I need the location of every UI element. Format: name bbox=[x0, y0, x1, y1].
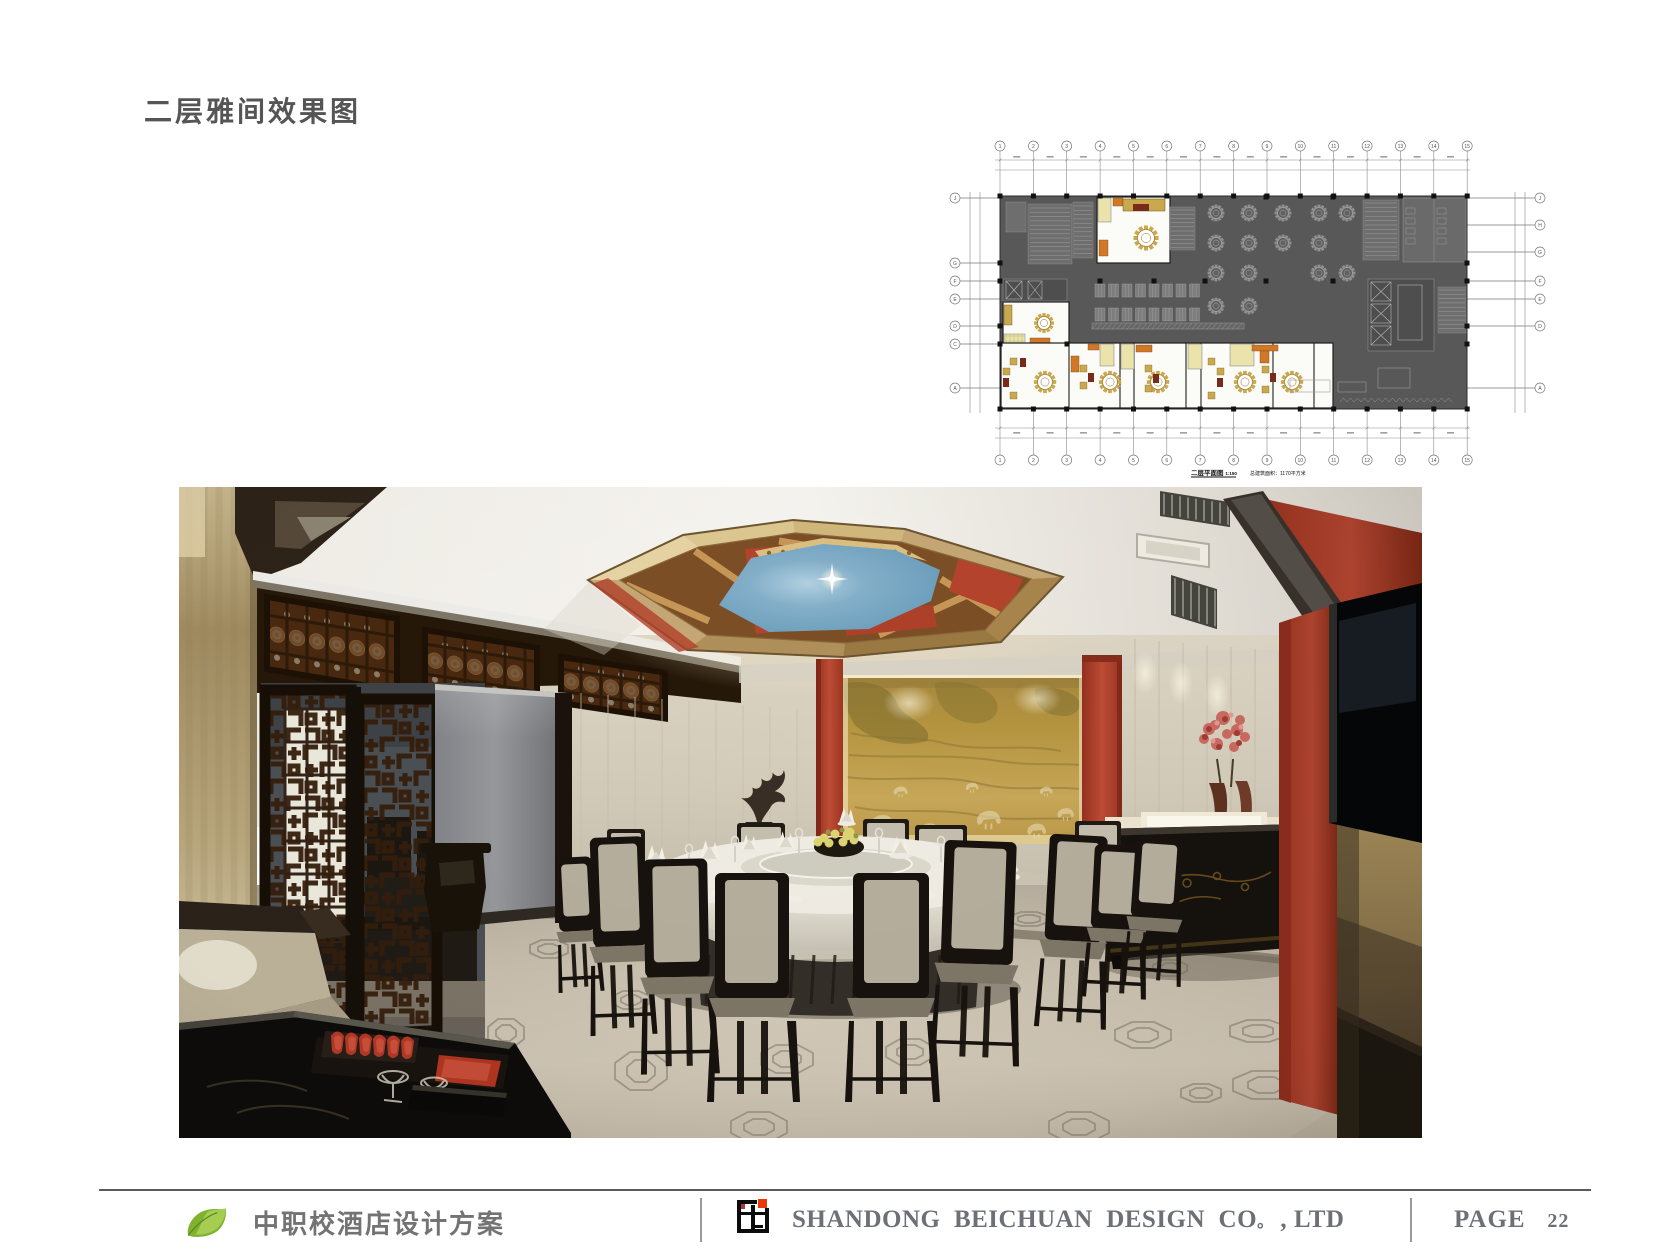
svg-text:3: 3 bbox=[1065, 144, 1068, 150]
svg-text:11: 11 bbox=[1331, 458, 1336, 464]
svg-text:1: 1 bbox=[999, 144, 1002, 150]
svg-text:9: 9 bbox=[1266, 144, 1269, 150]
svg-text:总建筑面积：1170平方米: 总建筑面积：1170平方米 bbox=[1250, 470, 1306, 477]
svg-text:7: 7 bbox=[1199, 458, 1202, 464]
svg-text:14: 14 bbox=[1431, 458, 1437, 464]
svg-text:12: 12 bbox=[1364, 144, 1370, 150]
svg-text:14: 14 bbox=[1431, 144, 1437, 150]
svg-text:7: 7 bbox=[1199, 144, 1202, 150]
svg-text:A: A bbox=[953, 386, 957, 392]
svg-text:J: J bbox=[1539, 196, 1542, 202]
svg-text:13: 13 bbox=[1398, 458, 1404, 464]
svg-text:D: D bbox=[953, 324, 957, 330]
svg-text:8: 8 bbox=[1232, 144, 1235, 150]
svg-text:4: 4 bbox=[1099, 144, 1102, 150]
svg-text:10: 10 bbox=[1298, 458, 1304, 464]
svg-text:11: 11 bbox=[1331, 144, 1336, 150]
svg-text:F: F bbox=[1538, 279, 1541, 285]
svg-text:G: G bbox=[1538, 250, 1542, 256]
svg-text:13: 13 bbox=[1398, 144, 1404, 150]
svg-text:二层平面图 1:150: 二层平面图 1:150 bbox=[1191, 468, 1237, 477]
svg-text:5: 5 bbox=[1132, 144, 1135, 150]
svg-text:3: 3 bbox=[1065, 458, 1068, 464]
svg-text:2: 2 bbox=[1032, 144, 1035, 150]
svg-text:12: 12 bbox=[1364, 458, 1370, 464]
svg-text:6: 6 bbox=[1165, 144, 1168, 150]
svg-text:6: 6 bbox=[1165, 458, 1168, 464]
svg-text:15: 15 bbox=[1464, 458, 1470, 464]
svg-text:1: 1 bbox=[999, 458, 1002, 464]
svg-text:2: 2 bbox=[1032, 458, 1035, 464]
svg-text:C: C bbox=[953, 342, 957, 348]
svg-text:E: E bbox=[953, 297, 957, 303]
svg-text:A: A bbox=[1538, 386, 1542, 392]
svg-text:E: E bbox=[1538, 297, 1542, 303]
svg-text:4: 4 bbox=[1099, 458, 1102, 464]
svg-text:15: 15 bbox=[1464, 144, 1470, 150]
svg-text:9: 9 bbox=[1266, 458, 1269, 464]
svg-text:8: 8 bbox=[1232, 458, 1235, 464]
svg-text:5: 5 bbox=[1132, 458, 1135, 464]
svg-text:D: D bbox=[1538, 324, 1542, 330]
svg-text:F: F bbox=[953, 279, 956, 285]
svg-text:J: J bbox=[954, 196, 957, 202]
svg-text:H: H bbox=[1538, 223, 1542, 229]
svg-text:G: G bbox=[953, 261, 957, 267]
svg-text:10: 10 bbox=[1298, 144, 1304, 150]
